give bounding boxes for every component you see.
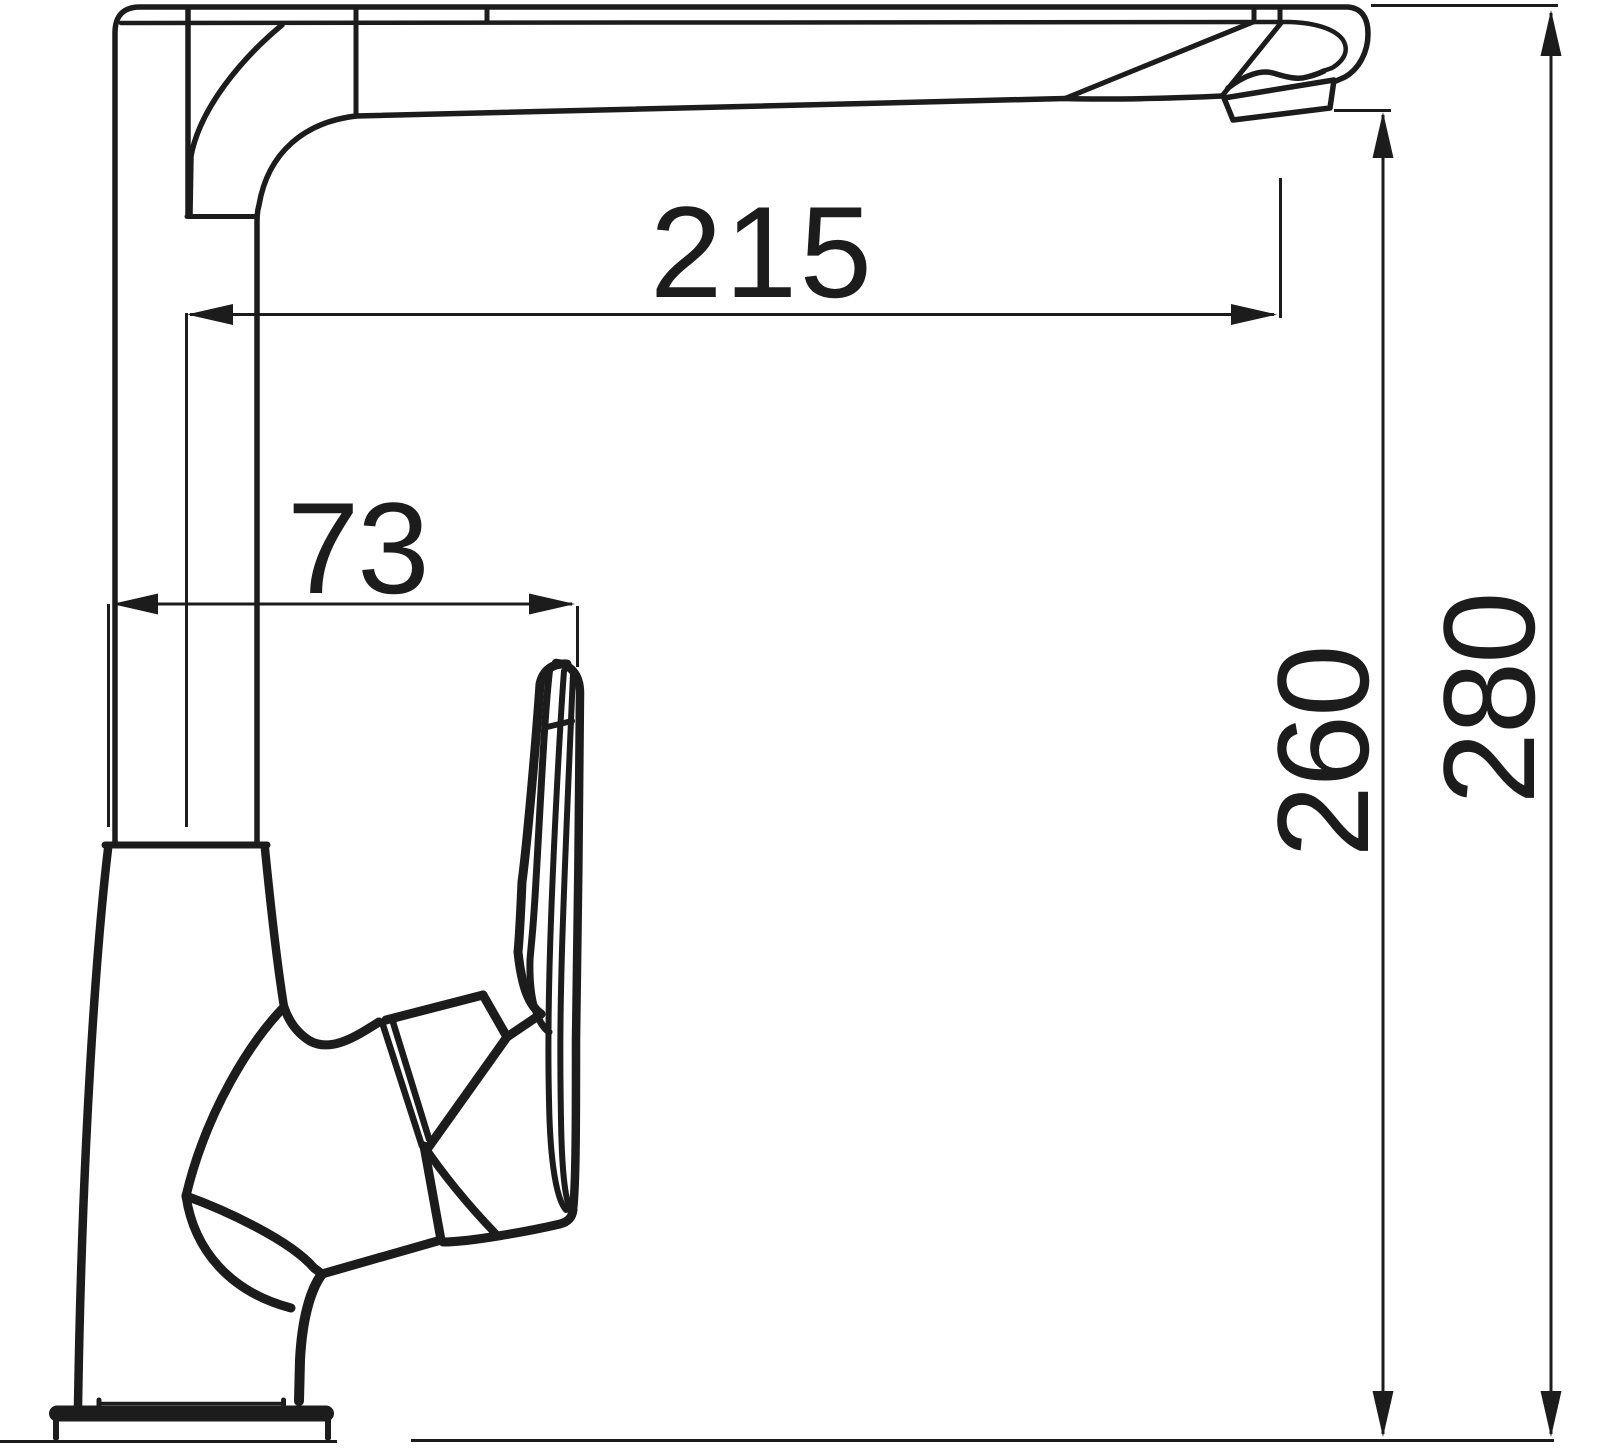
svg-text:280: 280 <box>1416 594 1562 805</box>
svg-text:73: 73 <box>287 475 428 621</box>
svg-text:260: 260 <box>1250 647 1396 858</box>
svg-text:215: 215 <box>650 179 874 325</box>
